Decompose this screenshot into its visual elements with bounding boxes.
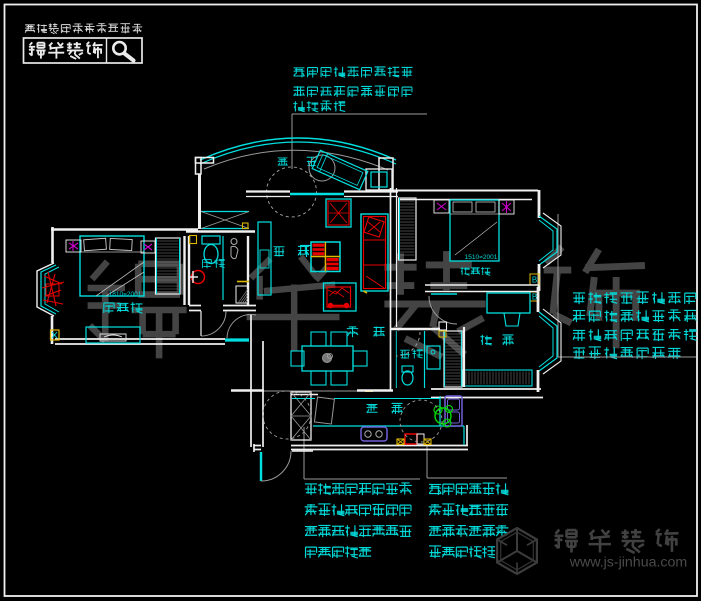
svg-text:1510=2001: 1510=2001	[465, 254, 498, 261]
svg-text:B: B	[532, 276, 537, 285]
svg-text:B: B	[532, 293, 537, 302]
svg-text:www.js-jinhua.com: www.js-jinhua.com	[569, 555, 687, 571]
svg-text:1810=2001: 1810=2001	[109, 291, 142, 298]
